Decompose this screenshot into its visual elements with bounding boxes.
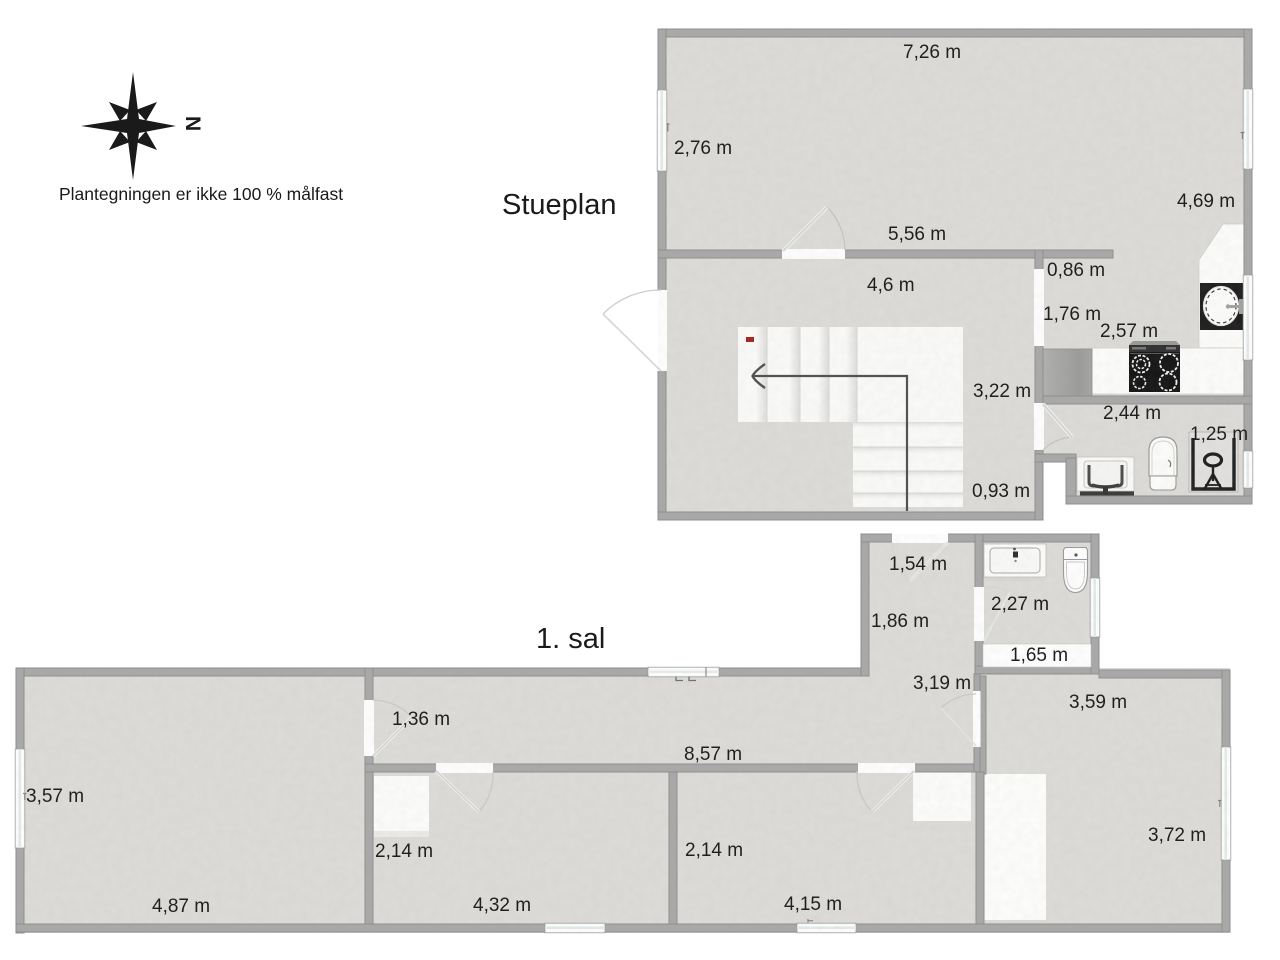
svg-text:Stueplan: Stueplan (502, 189, 617, 221)
svg-text:N: N (181, 116, 204, 131)
svg-text:Plantegningen er ikke 100 % må: Plantegningen er ikke 100 % målfast (59, 184, 343, 204)
svg-text:1. sal: 1. sal (536, 623, 605, 655)
